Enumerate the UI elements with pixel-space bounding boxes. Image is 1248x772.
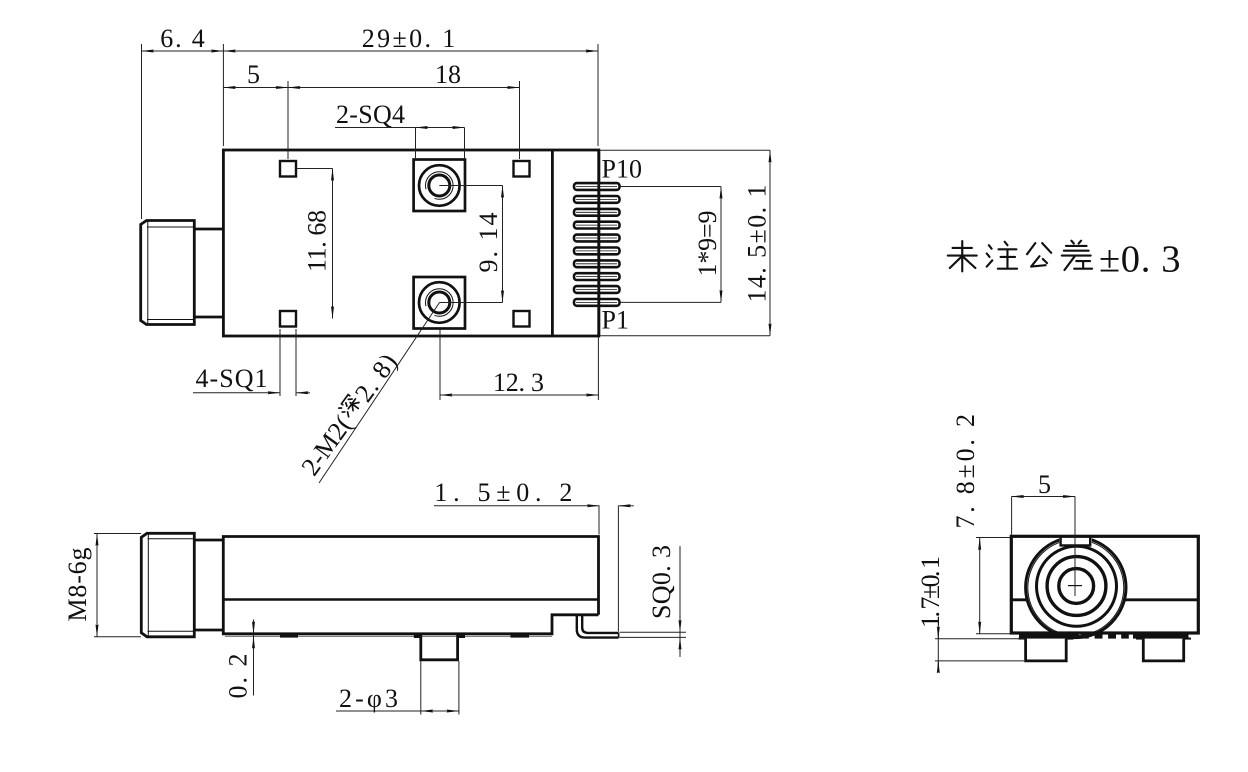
- svg-text:M8-6g: M8-6g: [63, 548, 92, 622]
- svg-text:2-SQ4: 2-SQ4: [336, 100, 405, 129]
- svg-text:6. 4: 6. 4: [160, 24, 205, 53]
- svg-text:±0. 3: ±0. 3: [1099, 239, 1181, 281]
- svg-text:7. 8±0. 2: 7. 8±0. 2: [951, 414, 980, 529]
- svg-text:1*9=9: 1*9=9: [693, 211, 722, 277]
- svg-text:SQ0. 3: SQ0. 3: [647, 545, 676, 619]
- svg-text:12. 3: 12. 3: [493, 368, 544, 397]
- svg-text:5: 5: [247, 60, 260, 89]
- svg-text:5: 5: [1038, 470, 1051, 499]
- svg-text:14. 5±0. 1: 14. 5±0. 1: [743, 185, 772, 303]
- svg-text:11. 68: 11. 68: [303, 210, 332, 272]
- svg-text:P1: P1: [602, 306, 629, 335]
- svg-text:1. 7±0. 1: 1. 7±0. 1: [916, 556, 945, 628]
- svg-text:4-SQ1: 4-SQ1: [196, 364, 268, 393]
- svg-text:P10: P10: [602, 155, 642, 184]
- svg-text:18: 18: [435, 60, 461, 89]
- svg-text:2-φ3: 2-φ3: [339, 684, 398, 713]
- svg-text:1. 5±0. 2: 1. 5±0. 2: [434, 478, 572, 507]
